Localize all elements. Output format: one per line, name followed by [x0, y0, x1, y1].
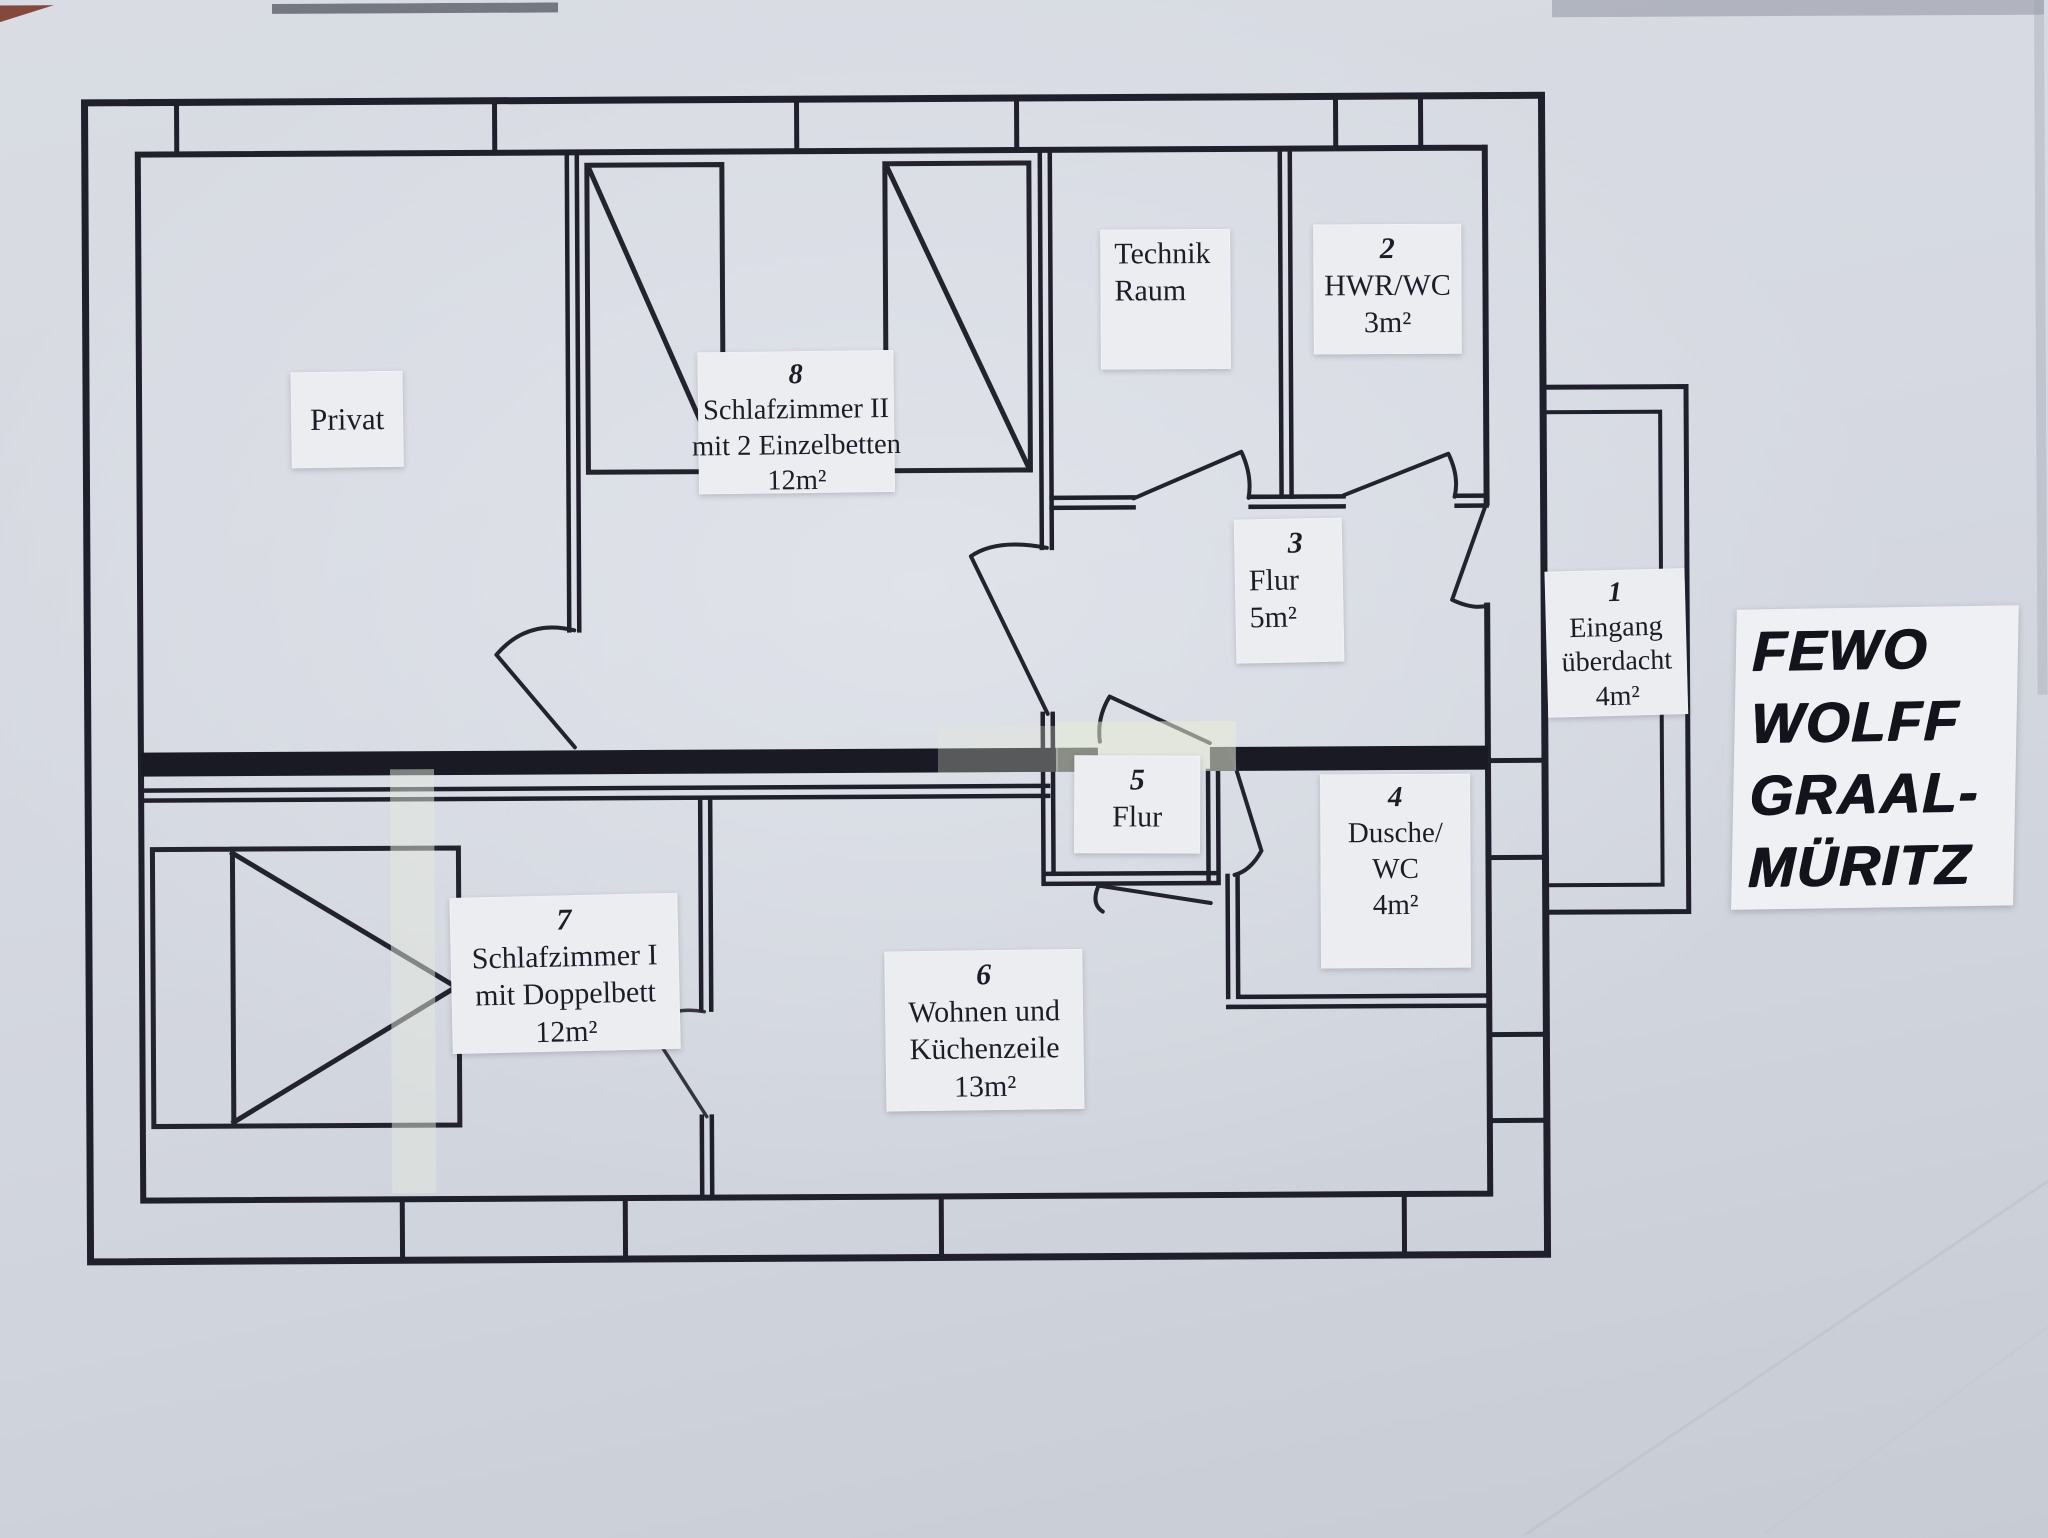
room-name: Wohnen und [908, 992, 1060, 1031]
door-flur5-wohnen [1095, 885, 1210, 912]
door-hwr [1343, 454, 1456, 498]
room-label-hwr-wc: 2 HWR/WC 3m² [1313, 224, 1462, 355]
smudge [390, 769, 436, 1193]
room-number: 5 [1130, 761, 1145, 798]
wall-flur3-north [1052, 496, 1487, 508]
room-name: Schlafzimmer II [703, 391, 889, 429]
room-name: Dusche/ [1348, 816, 1443, 852]
floor-plan-sheet: Privat 8 Schlafzimmer II mit 2 Einzelbet… [0, 0, 2048, 1538]
room-detail: überdacht [1561, 644, 1672, 682]
room-number: 3 [1287, 524, 1303, 561]
room-number: 7 [556, 901, 572, 939]
room-name: Eingang [1569, 609, 1663, 646]
wall-technik-hwr [1280, 149, 1292, 497]
room-name: Raum [1114, 272, 1186, 310]
room-label-schlafzimmer-2: 8 Schlafzimmer II mit 2 Einzelbetten 12m… [697, 350, 895, 494]
room-name: Technik [1114, 235, 1210, 273]
wall-privat [567, 152, 580, 630]
room-number: 4 [1388, 780, 1403, 816]
thick-wall-right [1210, 746, 1488, 771]
room-label-eingang: 1 Eingang überdacht 4m² [1544, 568, 1688, 718]
room-name: Schlafzimmer I [471, 936, 658, 977]
single-bed-icon [885, 163, 1031, 471]
room-number: 2 [1380, 230, 1395, 267]
wall-schlafzimmer1 [700, 800, 712, 1198]
thick-corridor-wall [141, 746, 1488, 777]
wall-schlafzimmer2 [1040, 150, 1053, 746]
smudge [938, 726, 1058, 773]
exterior-wall-inner [138, 148, 1490, 1201]
room-label-privat: Privat [290, 371, 403, 469]
room-label-flur-5: 5 Flur [1074, 755, 1200, 853]
room-label-technik: Technik Raum [1100, 229, 1231, 370]
room-number: 6 [976, 956, 992, 993]
room-detail: mit 2 Einzelbetten [692, 427, 901, 465]
door-privat [496, 627, 575, 747]
room-detail: Küchenzeile [909, 1030, 1059, 1069]
plan-title-line: GRAAL- [1749, 755, 2016, 831]
room-label-schlafzimmer-1: 7 Schlafzimmer I mit Doppelbett 12m² [449, 893, 680, 1054]
wall-lower-north [141, 786, 1048, 801]
room-label-wohnen: 6 Wohnen und Küchenzeile 13m² [884, 949, 1084, 1112]
door-technik [1133, 452, 1249, 499]
room-name: Privat [310, 400, 385, 439]
door-schlafzimmer2 [971, 544, 1048, 714]
room-area: 13m² [954, 1067, 1017, 1105]
right-edge-shadow [2034, 0, 2048, 695]
plan-title-line: MÜRITZ [1747, 827, 2014, 903]
room-area: 4m² [1595, 679, 1640, 715]
room-area: 12m² [535, 1012, 598, 1051]
room-label-flur-3: 3 Flur 5m² [1234, 518, 1345, 664]
room-label-dusche-wc: 4 Dusche/ WC 4m² [1320, 774, 1471, 969]
room-name: WC [1372, 852, 1419, 888]
plan-title-line: FEWO [1751, 611, 2018, 687]
floor-plan-photo: Privat 8 Schlafzimmer II mit 2 Einzelbet… [0, 0, 2048, 1538]
room-name: HWR/WC [1324, 267, 1451, 305]
plan-title-line: WOLFF [1750, 683, 2017, 759]
room-number: 8 [788, 357, 803, 392]
room-detail: mit Doppelbett [475, 974, 657, 1015]
top-right-shadow [1552, 0, 2044, 17]
top-edge-shadow [272, 2, 558, 13]
plan-title: FEWO WOLFF GRAAL- MÜRITZ [1731, 605, 2019, 910]
room-area: 3m² [1364, 304, 1412, 341]
room-area: 12m² [767, 463, 827, 499]
room-area: 4m² [1373, 888, 1419, 924]
room-name: Flur [1249, 562, 1300, 600]
room-number: 1 [1608, 576, 1623, 611]
room-name: Flur [1112, 799, 1162, 836]
paper-crease [1763, 1325, 2048, 1535]
room-area: 5m² [1249, 599, 1297, 637]
table-corner-sliver [0, 5, 54, 23]
paper-crease [1522, 1180, 2048, 1536]
door-entrance [1452, 503, 1488, 607]
